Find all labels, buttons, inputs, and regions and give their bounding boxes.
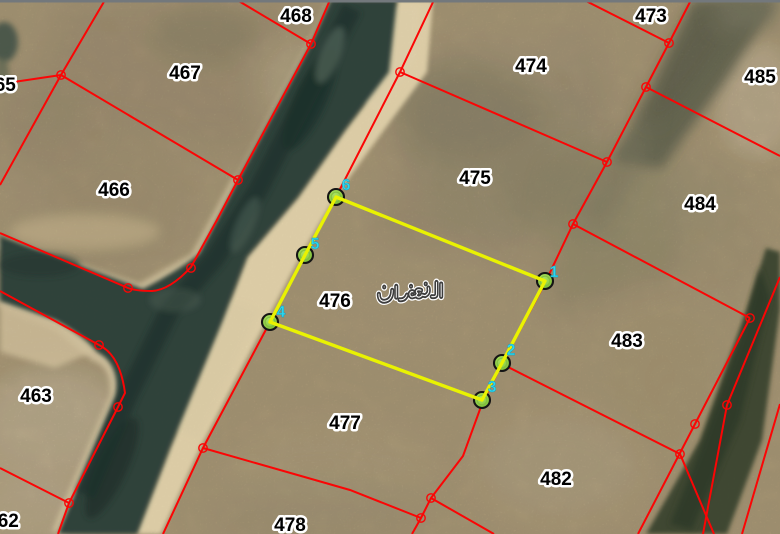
svg-text:5: 5 xyxy=(311,236,320,253)
svg-text:482: 482 xyxy=(540,469,572,490)
svg-text:2: 2 xyxy=(507,342,516,359)
svg-text:4: 4 xyxy=(277,304,286,321)
svg-text:485: 485 xyxy=(744,67,776,88)
svg-text:468: 468 xyxy=(280,6,312,27)
svg-text:465: 465 xyxy=(0,75,16,96)
svg-text:478: 478 xyxy=(274,515,306,534)
svg-text:3: 3 xyxy=(488,379,497,396)
svg-text:477: 477 xyxy=(329,413,361,434)
svg-text:476: 476 xyxy=(319,291,351,312)
svg-text:1: 1 xyxy=(550,264,559,281)
svg-text:462: 462 xyxy=(0,511,19,532)
svg-text:484: 484 xyxy=(684,194,716,215)
svg-text:474: 474 xyxy=(515,56,547,77)
svg-text:467: 467 xyxy=(169,63,201,84)
svg-text:466: 466 xyxy=(98,180,130,201)
svg-text:483: 483 xyxy=(611,331,643,352)
svg-text:475: 475 xyxy=(459,168,491,189)
svg-text:473: 473 xyxy=(635,6,667,27)
svg-text:463: 463 xyxy=(20,386,52,407)
svg-text:6: 6 xyxy=(342,177,351,194)
